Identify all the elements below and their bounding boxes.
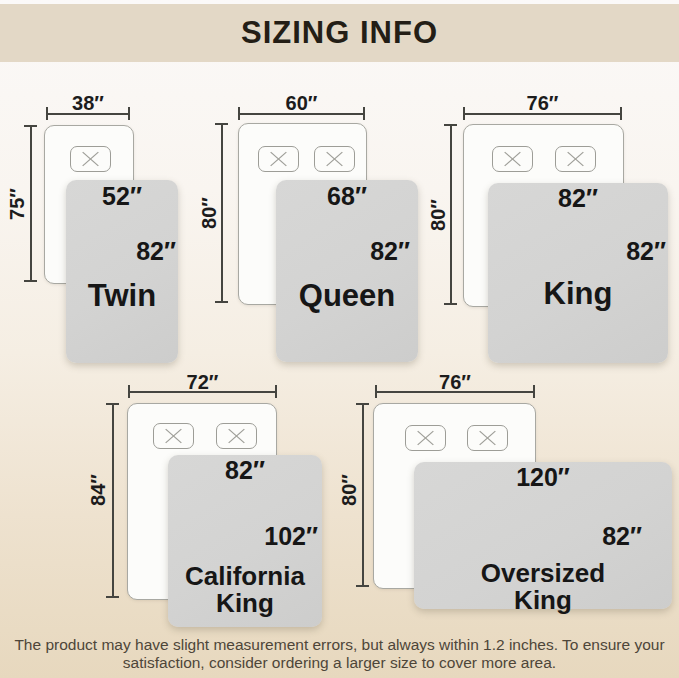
header-band: SIZING INFO: [0, 4, 679, 62]
blanket-size-name: California King: [168, 563, 322, 617]
pillow-x-icon: [154, 424, 193, 448]
footer-note: The product may have slight measurement …: [0, 636, 679, 671]
pillow-x-icon: [406, 426, 445, 450]
bed-length-label: 75″: [5, 164, 29, 244]
bed-length-dimension-line: [30, 125, 32, 282]
pillow: [492, 146, 533, 172]
bed-width-dimension-line: [46, 113, 130, 115]
pillow-x-icon: [493, 147, 532, 171]
bed-length-label: 80″: [337, 450, 361, 530]
pillow: [153, 423, 194, 449]
pillow: [467, 425, 508, 451]
pillow-x-icon: [468, 426, 507, 450]
page-title: SIZING INFO: [0, 4, 679, 62]
pillow-x-icon: [217, 424, 256, 448]
bed-width-dimension-line: [128, 391, 277, 393]
pillow-x-icon: [315, 147, 354, 171]
bed-length-dimension-line: [221, 123, 223, 303]
pillow-x-icon: [259, 147, 298, 171]
blanket-size-name: Oversized King: [414, 560, 672, 614]
blanket: 82″ 82″ King: [488, 183, 668, 363]
blanket: 120″ 82″ Oversized King: [414, 462, 672, 609]
blanket-width-label: 52″: [66, 183, 178, 209]
pillow: [216, 423, 257, 449]
bed-length-dimension-line: [450, 124, 452, 305]
pillow: [555, 146, 596, 172]
pillow: [70, 146, 111, 172]
bed-length-dimension-line: [362, 403, 364, 587]
blanket-length-label: 82″: [370, 238, 410, 264]
blanket-length-label: 82″: [136, 238, 176, 264]
blanket-width-label: 120″: [414, 464, 672, 490]
blanket-length-label: 102″: [264, 523, 318, 549]
pillow: [314, 146, 355, 172]
blanket-length-label: 82″: [602, 523, 642, 549]
blanket-width-label: 82″: [488, 185, 668, 211]
pillow: [258, 146, 299, 172]
pillow-x-icon: [556, 147, 595, 171]
blanket-width-label: 68″: [276, 183, 418, 209]
bed-length-dimension-line: [112, 403, 114, 598]
bed-length-label: 80″: [197, 173, 221, 253]
sizing-info-infographic: SIZING INFO 38″ 75″ 52″ 82″ Twin 60″ 80″: [0, 0, 679, 678]
blanket: 68″ 82″ Queen: [276, 180, 418, 362]
blanket-size-name: King: [488, 278, 668, 310]
blanket-size-name: Queen: [276, 280, 418, 312]
bed-width-dimension-line: [463, 113, 622, 115]
bed-length-label: 80″: [426, 175, 450, 255]
bed-length-label: 84″: [86, 450, 110, 530]
bed-width-dimension-line: [375, 391, 535, 393]
blanket-width-label: 82″: [168, 457, 322, 483]
blanket-size-name: Twin: [66, 280, 178, 312]
pillow-x-icon: [71, 147, 110, 171]
footer-line-2: satisfaction, consider ordering a larger…: [0, 654, 679, 672]
blanket: 82″ 102″ California King: [168, 455, 322, 627]
footer-line-1: The product may have slight measurement …: [0, 636, 679, 654]
blanket: 52″ 82″ Twin: [66, 180, 178, 363]
pillow: [405, 425, 446, 451]
blanket-length-label: 82″: [626, 238, 666, 264]
bed-width-dimension-line: [238, 113, 365, 115]
